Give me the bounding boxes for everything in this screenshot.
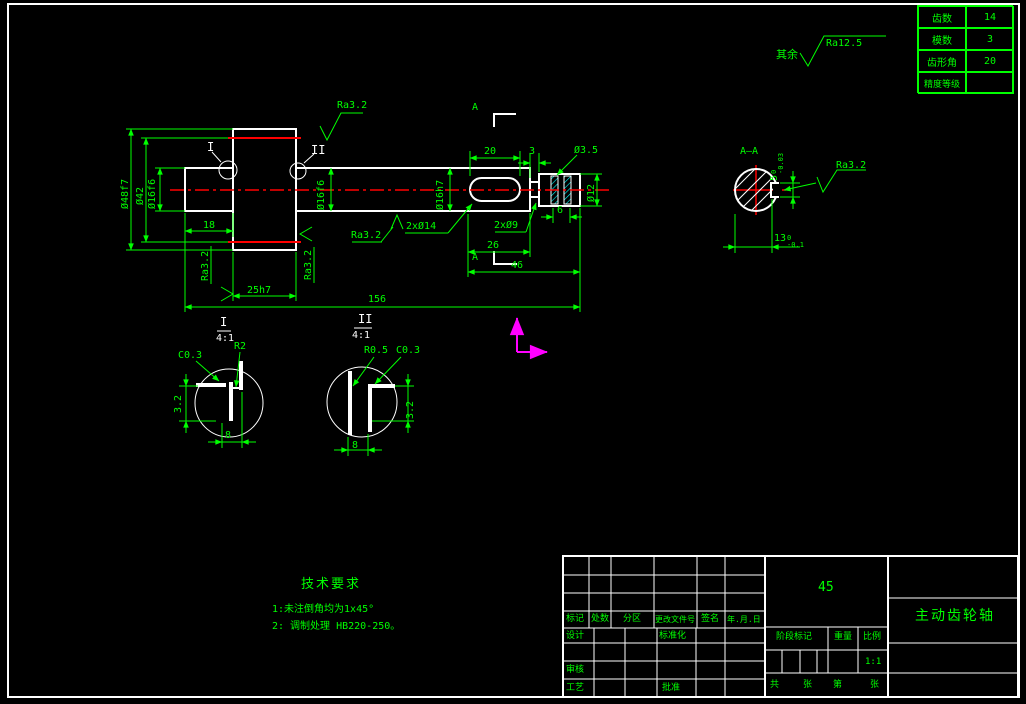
detail-balloons	[212, 152, 314, 179]
note-2x14: 2xØ14	[406, 221, 436, 232]
extension-lines	[126, 129, 800, 456]
section-keyway-width-dim: 50-0.03	[769, 153, 785, 181]
dim-20: 20	[484, 146, 496, 157]
detail2-marker: II	[311, 145, 325, 156]
general-finish-value: Ra12.5	[826, 38, 862, 49]
ra-section: Ra3.2	[836, 160, 866, 171]
roughness-symbol-left	[211, 246, 233, 301]
dim-dia12: Ø12	[586, 184, 597, 202]
scale-value: 1:1	[865, 657, 881, 667]
tol-lower: -0.1	[787, 242, 804, 249]
dim-18: 18	[203, 220, 215, 231]
section-letter-bottom: A	[472, 252, 478, 263]
note-2x9: 2xØ9	[494, 220, 518, 231]
centerlines	[170, 138, 786, 242]
dim-46: 46	[511, 260, 523, 271]
dim-156: 156	[368, 294, 386, 305]
cad-drawing-sheet: 齿数 14 模数 3 齿形角 20 精度等级 其余 Ra12.5 Ra3.2 I…	[0, 0, 1026, 704]
title-block-grid	[563, 556, 1018, 697]
param-value: 20	[966, 50, 1014, 72]
dim-25h7: 25h7	[247, 285, 271, 296]
rev-header-zone: 分区	[623, 614, 641, 624]
role-check: 审核	[566, 665, 584, 675]
rev-header-docno: 更改文件号	[655, 615, 695, 625]
sheet-no-label: 第	[833, 680, 842, 690]
dim-dia16f6-mid: Ø16f6	[316, 180, 327, 210]
param-label: 齿形角	[918, 50, 966, 72]
param-label: 模数	[918, 28, 966, 50]
tol-lower: -0.03	[778, 153, 785, 174]
tech-requirement-1: 1:未注倒角均为1x45°	[272, 604, 374, 615]
role-approve: 批准	[662, 683, 680, 693]
param-label: 齿数	[918, 6, 966, 28]
role-standardize: 标准化	[659, 631, 686, 641]
rev-header-date: 年.月.日	[727, 615, 761, 625]
material-value: 45	[818, 583, 834, 593]
sheet-border	[8, 4, 1019, 697]
dim-3: 3	[529, 146, 535, 157]
detail2-chamfer: C0.3	[396, 345, 420, 356]
detail2-depth: 3.2	[405, 401, 416, 419]
role-process: 工艺	[566, 683, 584, 693]
weight-label: 重量	[834, 632, 852, 642]
param-label: 精度等级	[918, 72, 966, 94]
section-letter-top: A	[472, 102, 478, 113]
section-title: A—A	[740, 146, 758, 157]
detail1-width: 8	[225, 430, 231, 441]
detail2-radius: R0.5	[364, 345, 388, 356]
dim-dia42: Ø42	[135, 187, 146, 205]
ra-top: Ra3.2	[337, 100, 367, 111]
dim-hole: Ø3.5	[574, 145, 598, 156]
ra-mid: Ra3.2	[351, 230, 381, 241]
param-value: 14	[966, 6, 1014, 28]
detail1-marker: I	[207, 142, 214, 153]
ra-right-face: Ra3.2	[303, 250, 314, 280]
rev-header-mark: 标记	[566, 614, 584, 624]
sheet-total-label: 共	[770, 680, 779, 690]
rev-header-count: 处数	[591, 614, 609, 624]
ra-left-face: Ra3.2	[200, 251, 211, 281]
detail2-width: 8	[352, 440, 358, 451]
detail1-chamfer: C0.3	[178, 350, 202, 361]
ucs-icon	[517, 318, 547, 352]
detail1-radius: R2	[234, 341, 246, 352]
section-keyway-depth-dim: 130-0.1	[774, 233, 804, 249]
drawing-canvas	[0, 0, 1026, 704]
tech-requirements-title: 技术要求	[301, 579, 361, 590]
dim-dia16f6-left: Ø16f6	[147, 179, 158, 209]
dim-26: 26	[487, 240, 499, 251]
detail1-depth: 3.2	[173, 395, 184, 413]
param-value	[966, 72, 1014, 94]
detail2-title: II	[358, 314, 372, 325]
general-finish-prefix: 其余	[776, 49, 798, 60]
dim-nominal: 5	[769, 175, 780, 181]
dim-dia48: Ø48f7	[120, 179, 131, 209]
sheet-unit2-label: 张	[870, 680, 879, 690]
stage-label: 阶段标记	[776, 632, 812, 642]
scale-label: 比例	[863, 632, 881, 642]
tech-requirement-2: 2: 调制处理 HB220-250。	[272, 621, 400, 632]
role-design: 设计	[566, 631, 584, 641]
rev-header-sign: 签名	[701, 614, 719, 624]
roughness-symbol-top	[320, 113, 363, 140]
detail2-scale: 4:1	[352, 330, 370, 341]
detail1-title: I	[220, 317, 227, 328]
dim-dia16h7: Ø16h7	[435, 180, 446, 210]
param-value: 3	[966, 28, 1014, 50]
dim-6: 6	[557, 205, 563, 216]
roughness-symbol-section	[817, 170, 866, 192]
part-name: 主动齿轮轴	[915, 611, 995, 621]
gear-parameter-table: 齿数 14 模数 3 齿形角 20 精度等级	[917, 5, 1013, 93]
detail1-scale: 4:1	[216, 333, 234, 344]
sheet-unit1-label: 张	[803, 680, 812, 690]
dim-nominal: 13	[774, 233, 786, 244]
